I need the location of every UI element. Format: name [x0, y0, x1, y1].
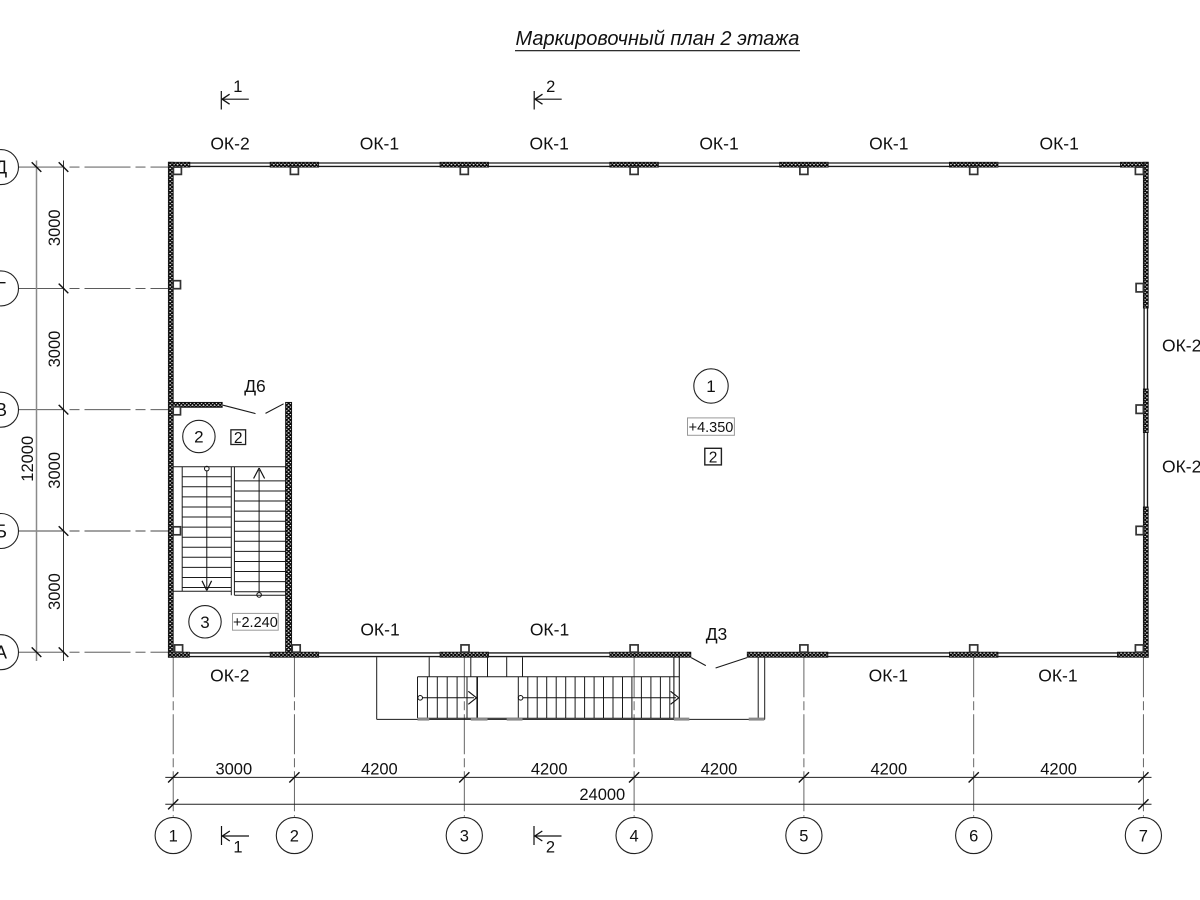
svg-text:ОК-1: ОК-1	[360, 134, 399, 154]
svg-text:2: 2	[290, 827, 299, 845]
svg-text:2: 2	[709, 449, 718, 466]
svg-text:А: А	[0, 643, 7, 663]
svg-text:1: 1	[706, 377, 715, 396]
svg-text:ОК-1: ОК-1	[360, 620, 399, 640]
svg-text:24000: 24000	[579, 786, 625, 804]
svg-text:Г: Г	[0, 279, 6, 299]
svg-text:2: 2	[546, 78, 555, 96]
svg-text:Д6: Д6	[244, 376, 266, 396]
svg-text:ОК-2: ОК-2	[1162, 457, 1200, 477]
svg-text:4200: 4200	[870, 761, 907, 779]
svg-text:4200: 4200	[531, 761, 568, 779]
svg-text:4: 4	[630, 827, 639, 845]
svg-text:1: 1	[169, 827, 178, 845]
svg-text:2: 2	[194, 428, 203, 447]
svg-text:3000: 3000	[46, 209, 64, 246]
svg-text:3: 3	[200, 613, 209, 632]
svg-text:12000: 12000	[19, 436, 37, 482]
svg-text:1: 1	[233, 839, 242, 857]
svg-text:5: 5	[799, 827, 808, 845]
svg-text:2: 2	[546, 839, 555, 857]
svg-text:4200: 4200	[361, 761, 398, 779]
svg-text:3000: 3000	[46, 331, 64, 368]
svg-text:+2.240: +2.240	[233, 615, 278, 631]
svg-text:Маркировочный план 2 этажа: Маркировочный план 2 этажа	[515, 28, 799, 50]
svg-text:2: 2	[234, 430, 243, 447]
svg-text:ОК-1: ОК-1	[1038, 666, 1077, 686]
svg-text:ОК-1: ОК-1	[699, 134, 738, 154]
svg-text:ОК-2: ОК-2	[1162, 336, 1200, 356]
svg-text:4200: 4200	[701, 761, 738, 779]
svg-text:ОК-1: ОК-1	[869, 666, 908, 686]
svg-text:ОК-2: ОК-2	[210, 666, 249, 686]
svg-text:ОК-1: ОК-1	[869, 134, 908, 154]
svg-text:ОК-1: ОК-1	[1040, 134, 1079, 154]
svg-text:4200: 4200	[1040, 761, 1077, 779]
svg-text:Д3: Д3	[706, 624, 728, 644]
svg-text:ОК-1: ОК-1	[530, 134, 569, 154]
svg-text:Б: Б	[0, 521, 7, 541]
svg-text:7: 7	[1139, 827, 1148, 845]
svg-text:3000: 3000	[46, 573, 64, 610]
svg-text:В: В	[0, 400, 7, 420]
svg-text:ОК-1: ОК-1	[530, 620, 569, 640]
svg-text:+4.350: +4.350	[689, 420, 734, 436]
svg-text:1: 1	[233, 78, 242, 96]
svg-text:Д: Д	[0, 158, 7, 178]
svg-text:3: 3	[460, 827, 469, 845]
svg-text:3000: 3000	[46, 452, 64, 489]
svg-text:3000: 3000	[215, 761, 252, 779]
svg-text:ОК-2: ОК-2	[210, 134, 249, 154]
svg-text:6: 6	[969, 827, 978, 845]
